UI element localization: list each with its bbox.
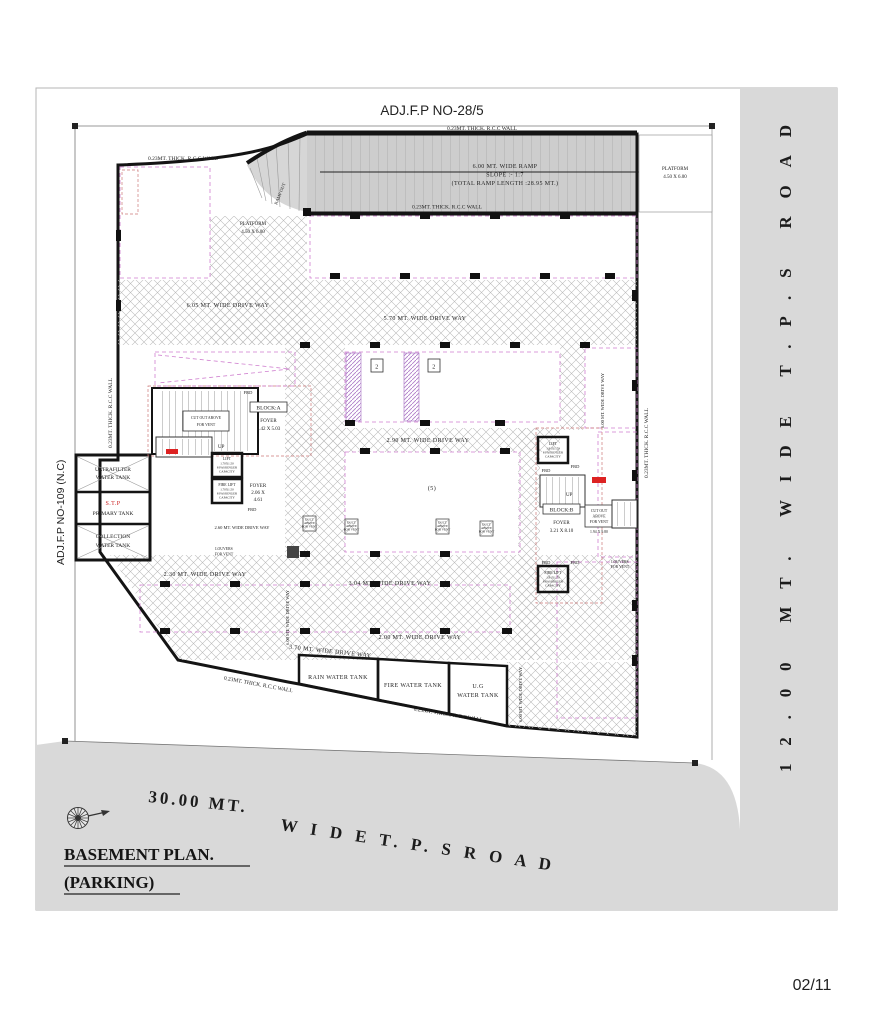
collection-tank-1: COLLECTION — [96, 534, 131, 540]
up-label-b: UP — [566, 493, 573, 498]
tps-road-right: 12.00 MT. WIDE T.P.S ROAD — [740, 88, 837, 910]
stall-count-5: (5) — [428, 485, 436, 492]
foyer-a2-dim1: 2.06 X — [251, 491, 265, 496]
cutout-a-1: CUT OUT ABOVE — [191, 416, 222, 420]
frd-b3: FRD — [542, 560, 552, 565]
cutout-a-2: FOR VENT — [197, 423, 216, 427]
frd-a2: FRD — [248, 507, 258, 512]
inner-platform-label: PLATFORM — [240, 222, 267, 227]
dw-inner-small: 2.60 MT. WIDE DRIVE WAY — [214, 525, 270, 530]
lift-a-1: LIFT — [223, 457, 232, 461]
rcc-wall-label-ramp-bottom: 0.23MT. THICK. R.C.C WALL — [412, 205, 483, 211]
platform-dim-label: 4.50 X 6.00 — [663, 175, 687, 180]
ultrafilter-tank-1: ULTRAFILTER — [95, 467, 131, 473]
cutout-b-1: CUT OUT — [591, 509, 608, 513]
block-b-dim: 3.21 X 8.10 — [550, 529, 574, 534]
foyer-a2-dim2: 4.61 — [254, 498, 263, 503]
ug-tank-label-1: U.G — [472, 684, 484, 690]
block-a-foyer: FOYER — [260, 419, 277, 424]
ramp-width-label: 6.00 MT. WIDE RAMP — [473, 164, 538, 170]
fire-shutter-a — [166, 449, 178, 454]
frd-b4: FRD — [571, 560, 581, 565]
title-line-1: BASEMENT PLAN. — [64, 845, 214, 864]
ramp-length-label: (TOTAL RAMP LENGTH :28.95 MT.) — [452, 180, 559, 187]
lift-a-4: CAPACITY — [219, 470, 235, 474]
rain-tank-label: RAIN WATER TANK — [308, 675, 368, 681]
stp-tank-1: S.T.P — [106, 501, 121, 507]
fire-lift-a-4: CAPACITY — [219, 496, 235, 500]
duct-2c: FOR VENT — [344, 528, 359, 532]
lift-b-4: CAPACITY — [545, 455, 561, 459]
entry-ramp: 6.00 MT. WIDE RAMP SLOPE :- 1:7 (TOTAL R… — [247, 126, 652, 214]
dw-main-left: 6.05 MT. WIDE DRIVE WAY — [187, 303, 270, 309]
block-b-name: BLOCK:B — [550, 508, 574, 514]
duct-solid — [287, 546, 299, 558]
frd-b1: FRD — [542, 468, 552, 473]
lift-b-1: LIFT — [549, 442, 558, 446]
fire-lift-a-1: FIRE LIFT — [218, 483, 236, 487]
dw-center: 2.90 MT. WIDE DRIVE WAY — [387, 438, 470, 444]
duct-1c: FOR VENT — [302, 525, 317, 529]
rcc-wall-right: 0.23MT. THICK. R.C.C WALL — [644, 407, 650, 478]
block-a-name: BLOCK:A — [256, 406, 280, 412]
rcc-wall-label-ramp-top: 0.23MT. THICK. R.C.C WALL — [447, 126, 518, 132]
fire-lift-b-1: FIRE LIFT — [544, 571, 562, 575]
cutout-b-2: ABOVE — [592, 515, 606, 519]
cutout-b-dim: 1.94 X 9.80 — [590, 530, 608, 534]
fire-lift-b-4: CAPACITY — [545, 584, 561, 588]
duct-3c: FOR VENT — [435, 528, 450, 532]
block-b-foyer: FOYER — [553, 521, 570, 526]
louvers-a-1: LOUVERS — [215, 547, 233, 551]
louvers-b-1: LOUVERS — [611, 560, 629, 564]
stall-count-2b: 2 — [432, 365, 435, 371]
louvers-b-2: FOR VENT — [611, 565, 630, 569]
dw-lower-center: 3.04 MT. WIDE DRIVE WAY — [349, 581, 432, 587]
adjacent-plot-left-label: ADJ.F.P NO-109 (N.C) — [55, 460, 67, 565]
rcc-wall-top-left: 0.23MT. THICK. R.C.C WALL — [148, 156, 219, 162]
block-a-dim: 3.42 X 5.03 — [257, 427, 281, 432]
stp-tank-2: PRIMARY TANK — [93, 511, 134, 517]
up-label-a: UP — [218, 445, 225, 450]
inner-platform-dim: 4.50 X 6.00 — [241, 230, 265, 235]
title-line-2: (PARKING) — [64, 873, 154, 892]
dw-vertical-1: 6.00 MT. WIDE DRIVE WAY — [285, 589, 290, 645]
dw-lower-left: 2.30 MT. WIDE DRIVE WAY — [164, 572, 247, 578]
dw-vertical-3: 6.00 MT. WIDE DRIVE WAY — [518, 666, 523, 722]
fire-tank-label: FIRE WATER TANK — [384, 683, 442, 689]
ultrafilter-tank-2: WATER TANK — [96, 475, 130, 481]
drawing-sheet: 12.00 MT. WIDE T.P.S ROAD 30.00 MT. W I … — [0, 0, 872, 1024]
frd-b2: FRD — [571, 464, 581, 469]
foyer-a2: FOYER — [250, 484, 267, 489]
platform-label: PLATFORM — [662, 167, 689, 172]
dw-vertical-2: 6.00 MT. WIDE DRIVE WAY — [600, 372, 605, 428]
adjacent-plot-top-label: ADJ.F.P NO-28/5 — [380, 103, 483, 118]
dw-bottom: 2.00 MT. WIDE DRIVE WAY — [379, 635, 462, 641]
collection-tank-2: WATER TANK — [96, 543, 130, 549]
ug-tank-label-2: WATER TANK — [457, 693, 499, 699]
louvers-a-2: FOR VENT — [215, 553, 234, 557]
duct-4c: FOR VENT — [479, 530, 494, 534]
ramp-platform: PLATFORM 4.50 X 6.00 — [639, 135, 712, 212]
page-number: 02/11 — [793, 977, 832, 994]
frd-a1: FRD — [244, 390, 254, 395]
rcc-wall-left: 0.23MT. THICK. R.C.C WALL — [108, 377, 114, 448]
ramp-slope-label: SLOPE :- 1:7 — [486, 173, 523, 179]
stall-count-2a: 2 — [375, 365, 378, 371]
cutout-b-3: FOR VENT — [590, 520, 609, 524]
dw-main-right: 5.70 MT. WIDE DRIVE WAY — [384, 316, 467, 322]
fire-shutter-b — [592, 477, 606, 483]
